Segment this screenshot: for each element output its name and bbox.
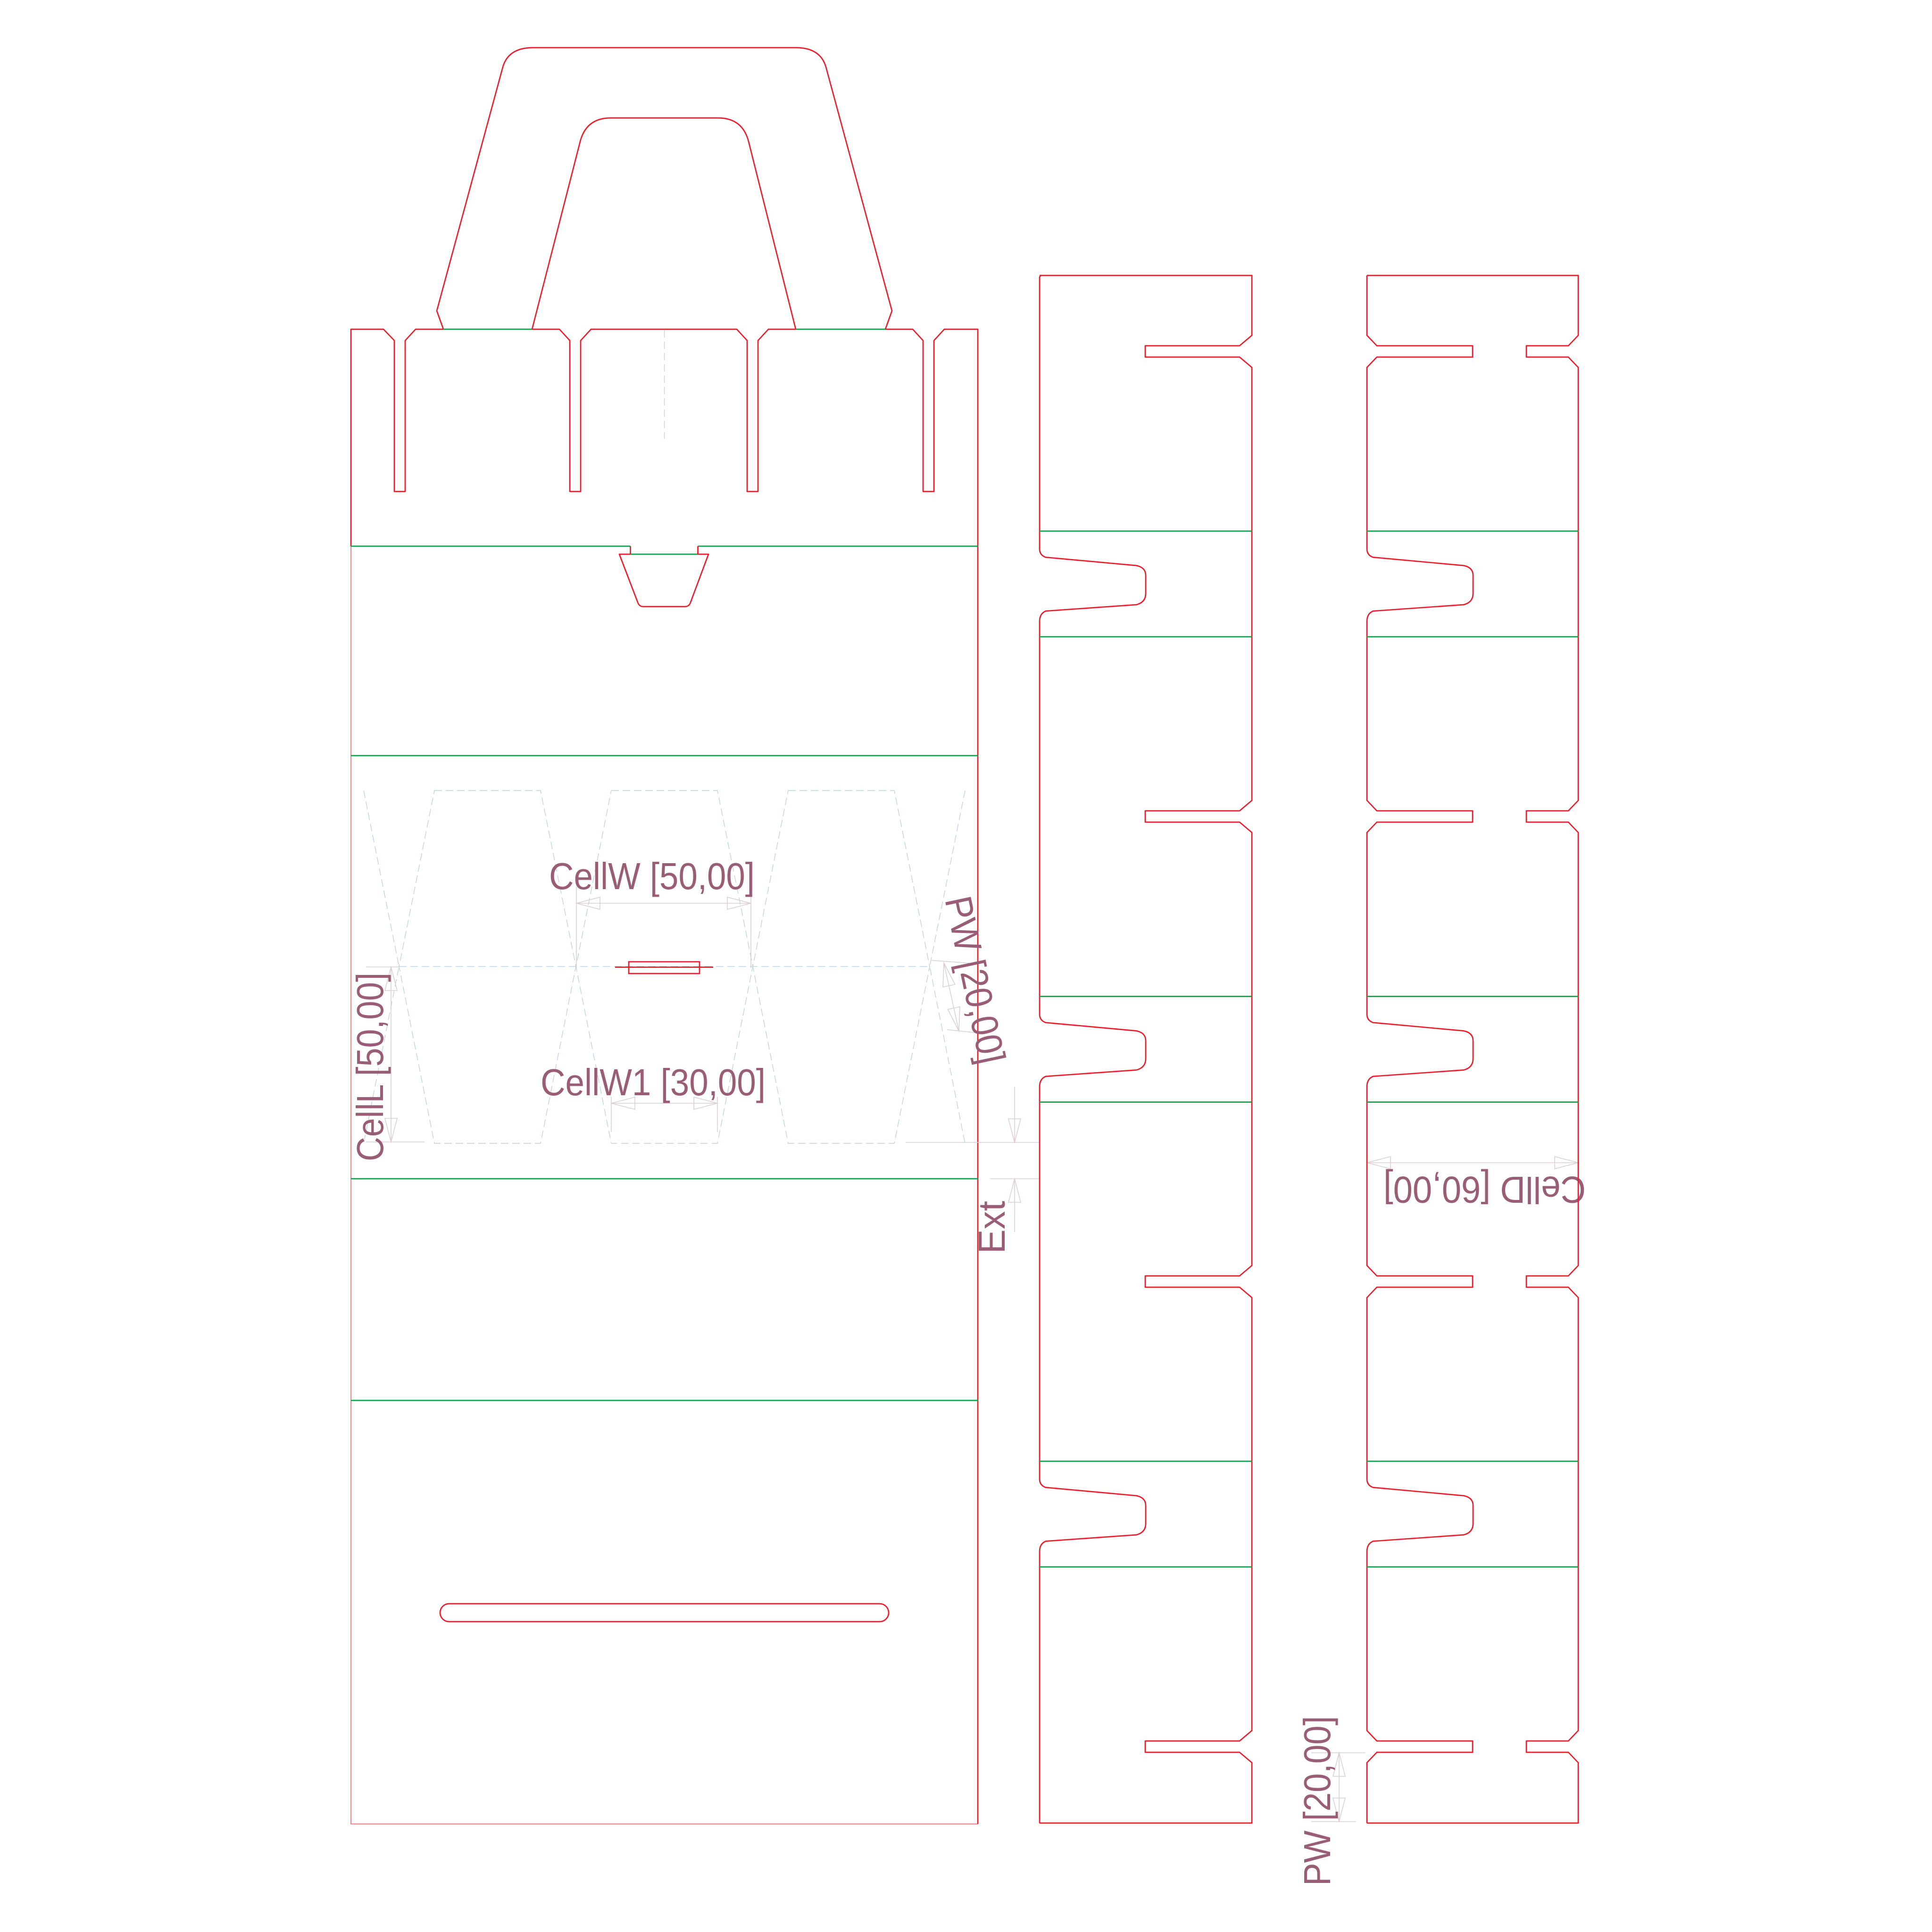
svg-text:CellW [50,00]: CellW [50,00]	[549, 855, 755, 897]
svg-text:PW [20,00]: PW [20,00]	[1296, 1716, 1338, 1886]
svg-text:CellL [50,00]: CellL [50,00]	[349, 973, 391, 1161]
svg-text:Ext: Ext	[971, 1201, 1013, 1254]
svg-text:CellD [60,00]: CellD [60,00]	[1383, 1169, 1586, 1211]
svg-text:PW [20,00]: PW [20,00]	[937, 892, 1013, 1067]
svg-text:CellW1 [30,00]: CellW1 [30,00]	[541, 1061, 766, 1103]
